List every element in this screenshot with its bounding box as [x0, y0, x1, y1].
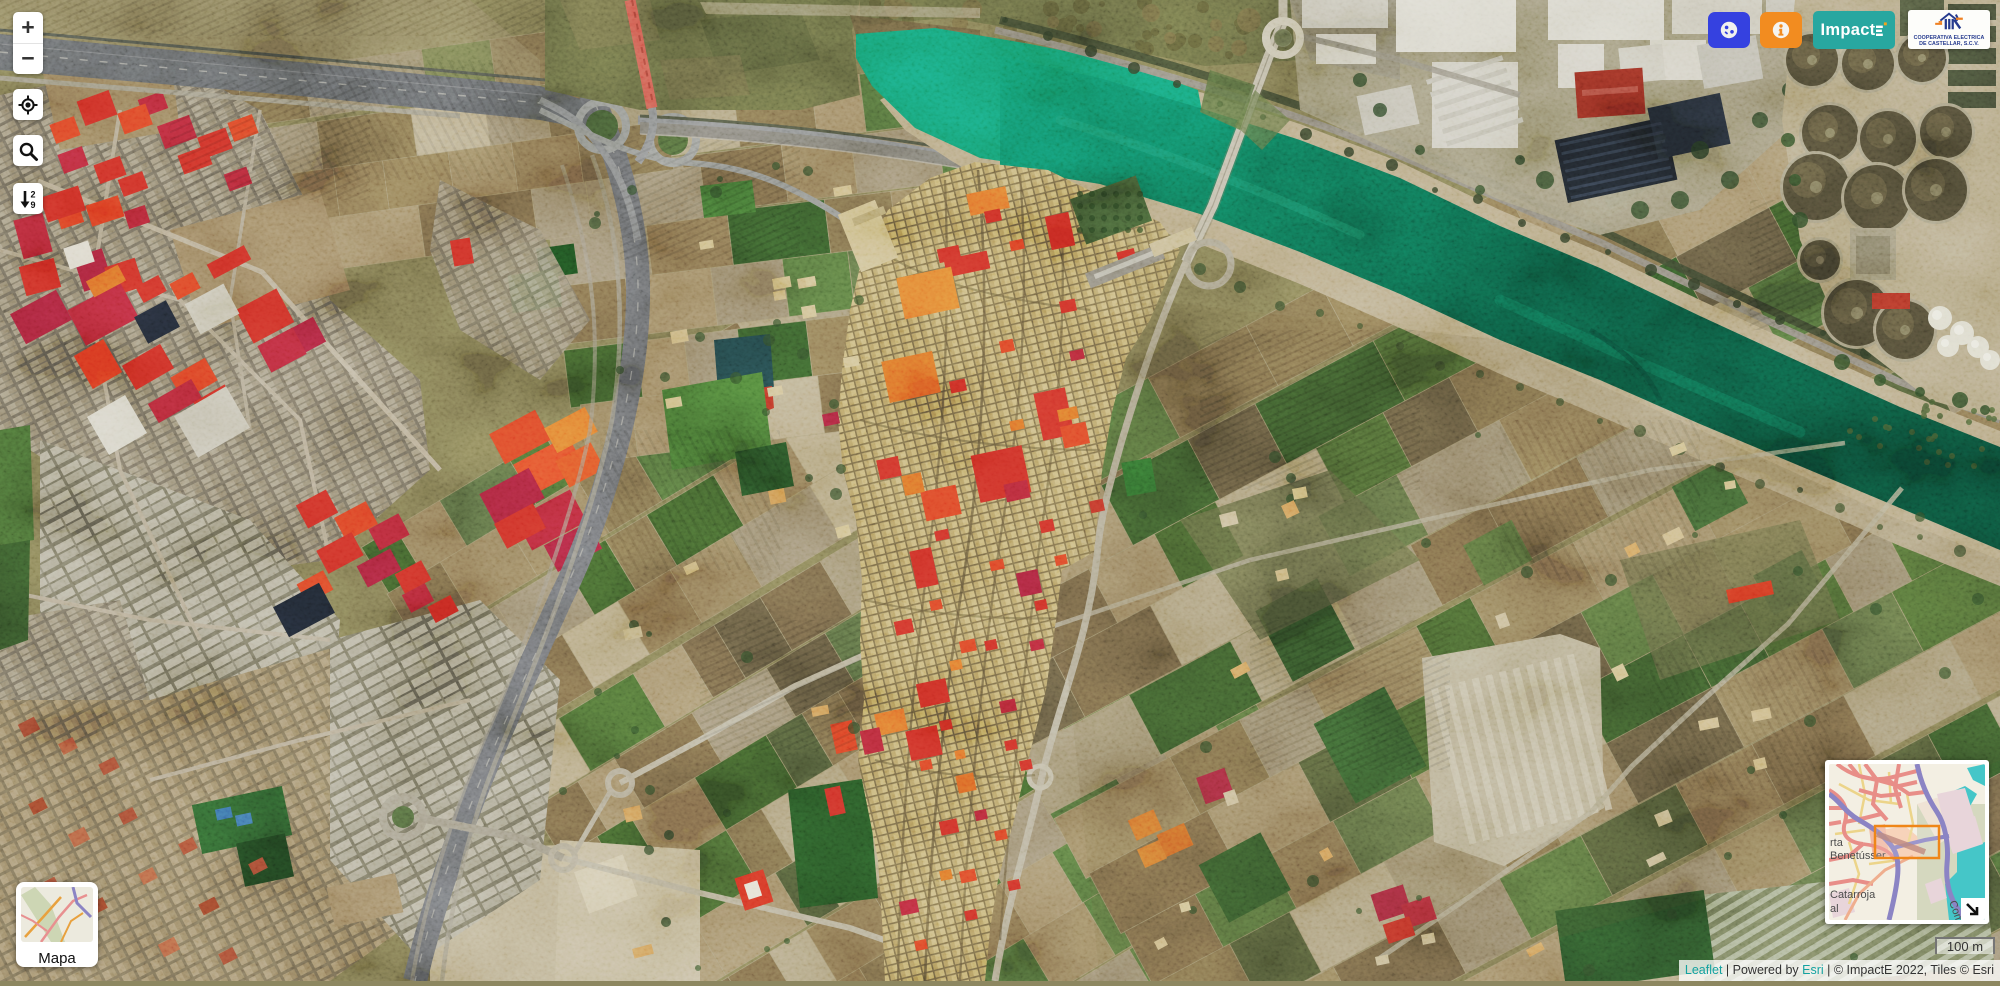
svg-text:al: al	[1830, 903, 1839, 915]
svg-text:Catarroja: Catarroja	[1830, 889, 1876, 901]
svg-text:rta: rta	[1830, 837, 1844, 849]
svg-text:9: 9	[31, 200, 36, 210]
svg-text:2: 2	[31, 189, 36, 199]
